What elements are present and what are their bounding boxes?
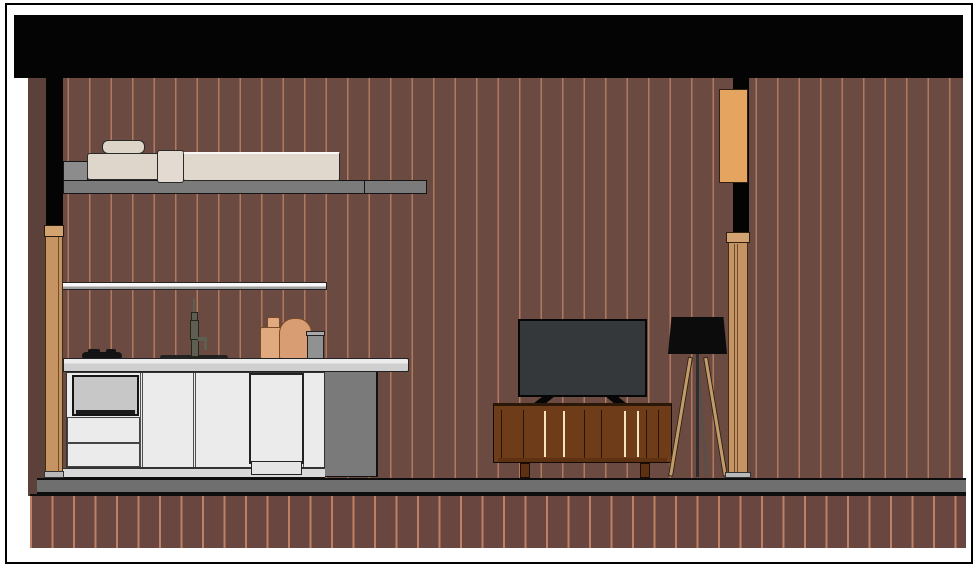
sheet-frame <box>5 3 973 564</box>
drawing-sheet <box>0 0 977 570</box>
